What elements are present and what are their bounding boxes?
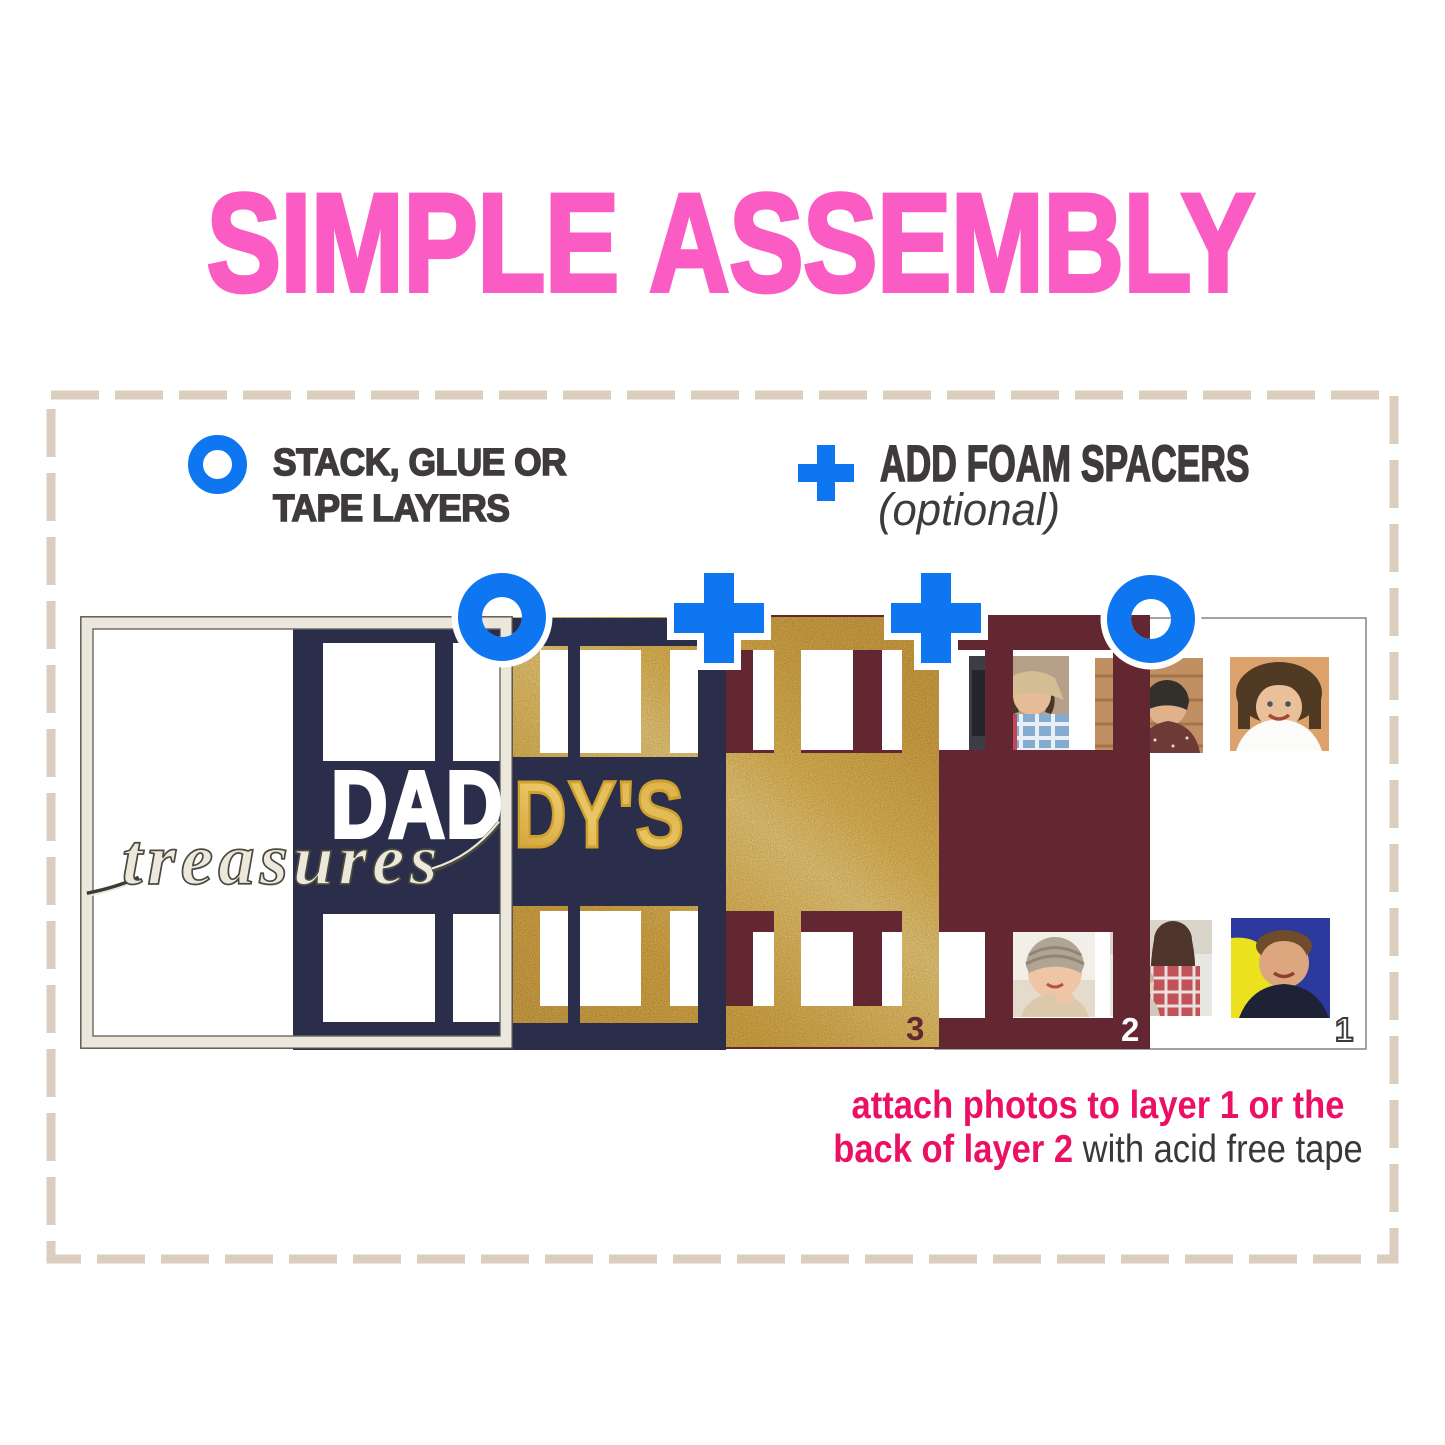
svg-text:treasures: treasures — [122, 819, 443, 900]
svg-text:1: 1 — [1335, 1011, 1353, 1048]
svg-text:3: 3 — [906, 1010, 924, 1047]
svg-text:2: 2 — [1121, 1011, 1139, 1048]
svg-text:DY'S: DY'S — [514, 761, 685, 867]
